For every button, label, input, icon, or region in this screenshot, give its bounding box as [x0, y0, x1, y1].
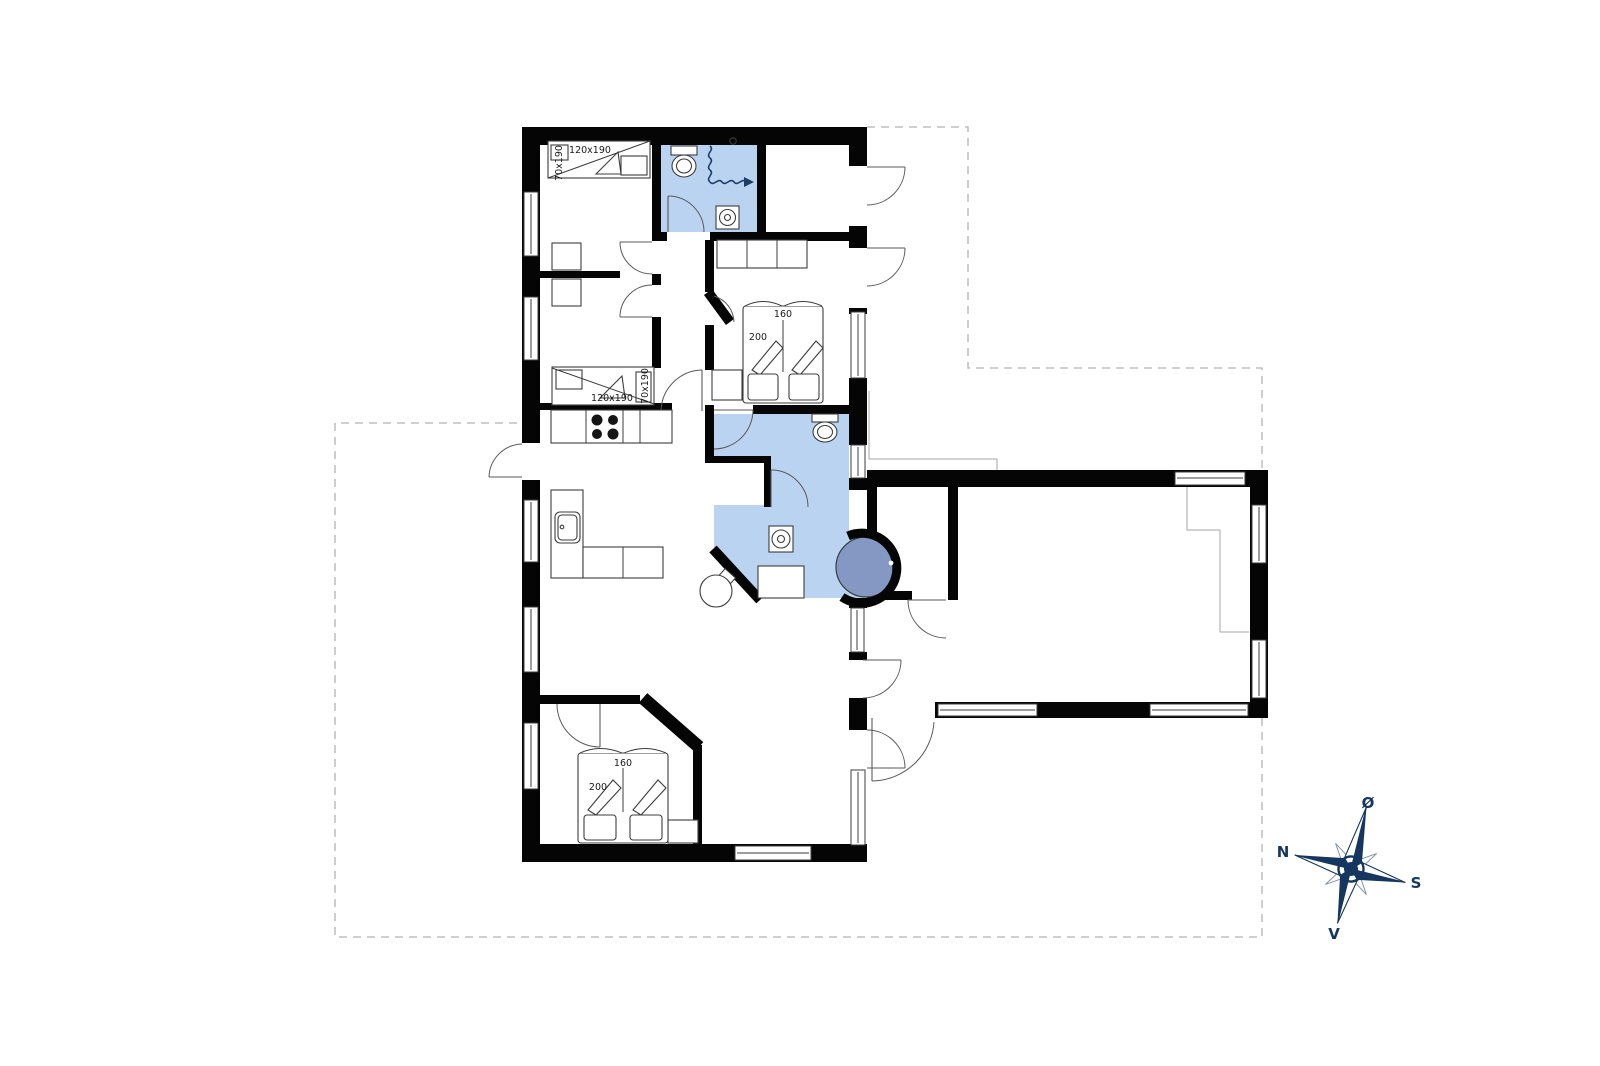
window-wing-south-1	[938, 704, 1037, 716]
door-terrace-west	[489, 443, 540, 480]
bunk-bed-1: 120x190 70x190	[548, 141, 650, 181]
wall-bedroom1-bedroom2	[540, 271, 620, 278]
floor-plan-page: 120x190 70x190 120x190 70x190 160 200 16…	[0, 0, 1600, 1066]
compass-label-east: Ø	[1362, 794, 1375, 812]
window-wing-south-2	[1150, 704, 1248, 716]
loft-line-livingroom	[1187, 487, 1249, 632]
door-terrace-wing-south	[872, 718, 934, 781]
compass-rose: N Ø S V	[1277, 793, 1422, 943]
wall-east-north-5	[849, 478, 867, 490]
loft-line-hall	[869, 391, 997, 483]
window-wing-east-1	[1252, 505, 1266, 563]
window-hall-partition	[851, 608, 864, 652]
window-west-bedroom2	[524, 297, 538, 360]
window-west-kitchen	[524, 500, 538, 562]
wall-bath2-west	[705, 414, 714, 462]
wall-corridor-west-b	[652, 317, 661, 368]
wall-bedroom3-diagonal	[708, 292, 730, 322]
floor-plan-drawing: 120x190 70x190 120x190 70x190 160 200 16…	[0, 0, 1600, 1066]
window-wing-north	[1175, 472, 1245, 485]
wall-east-lower	[849, 845, 867, 862]
terrace-outline-northeast	[867, 127, 1262, 470]
wall-east-north-1	[849, 127, 867, 166]
wall-bedroom3-south-a	[705, 405, 714, 414]
bed-size-label: 120x190	[569, 145, 611, 156]
door-hall-wing	[863, 660, 901, 698]
stove-body	[700, 575, 732, 607]
wall-nook-north	[705, 456, 771, 463]
loft-lines	[869, 391, 1249, 632]
wardrobe-bedroom1	[552, 243, 581, 270]
bath-vanity	[758, 566, 804, 598]
window-east-bedroom3	[851, 312, 865, 378]
closet-row-bedroom3	[717, 240, 807, 268]
door-bedroom2	[620, 285, 652, 317]
toilet-2	[812, 414, 838, 442]
bunk-bed-2: 120x190 70x190	[552, 367, 654, 405]
spa-jet-dot	[889, 561, 894, 566]
door-terrace-east	[867, 730, 905, 768]
wall-corridor-west-a	[652, 274, 661, 285]
nightstand-bedroom3	[712, 370, 742, 400]
window-east-bath2	[851, 445, 865, 478]
window-south-hall	[735, 846, 811, 860]
wall-east-mid-2	[849, 652, 867, 660]
bed-size-label: 120x190	[591, 393, 633, 404]
wall-bedroom3-south-b	[753, 405, 867, 414]
wall-east-mid-3	[849, 698, 867, 730]
wardrobe-bedroom2	[552, 279, 581, 306]
double-bed-north: 160 200	[743, 302, 823, 404]
double-bed-south: 160 200	[578, 749, 668, 844]
floor-drain-2	[769, 526, 793, 552]
closet-nook-floor	[705, 463, 764, 505]
wall-south	[522, 844, 867, 862]
wall-bedroom4-diagonal	[643, 698, 699, 747]
wall-bedroom3-west	[705, 325, 714, 370]
door-bedroom1	[620, 242, 652, 274]
toilet	[671, 146, 697, 177]
compass-label-west: V	[1328, 925, 1340, 943]
bed-width-label: 160	[614, 758, 632, 769]
kitchen	[551, 410, 672, 578]
nightstand-bedroom4	[668, 820, 698, 843]
door-entrance-1	[867, 167, 905, 205]
compass-label-south: S	[1411, 874, 1422, 892]
window-west-bedroom4	[524, 723, 538, 789]
window-west-living	[524, 607, 538, 672]
window-east-hall	[851, 770, 865, 845]
bed-width-label: 160	[774, 309, 792, 320]
wall-bath1-south-a	[652, 232, 667, 241]
bed-length-label: 200	[749, 332, 767, 343]
wood-stove	[700, 569, 736, 607]
wall-utility-east	[948, 487, 958, 600]
kitchen-sink	[555, 512, 580, 543]
door-utility	[908, 600, 946, 638]
wall-corridor-east	[705, 240, 714, 292]
bed-length-label: 200	[589, 782, 607, 793]
door-bedroom4	[557, 704, 600, 747]
wall-bedroom4-north	[540, 695, 640, 704]
bed-size-label-rotated: 70x190	[640, 368, 651, 404]
window-west-bedroom1	[524, 192, 538, 256]
door-entrance-2	[867, 248, 905, 286]
window-wing-east-2	[1252, 640, 1266, 698]
floor-drain	[716, 206, 739, 229]
wall-nook-east	[764, 463, 771, 507]
bed-size-label-rotated: 70x190	[554, 145, 565, 181]
wall-bath1-storage	[757, 145, 766, 232]
wall-bedroom1-east	[652, 145, 661, 238]
compass-label-north: N	[1277, 843, 1290, 861]
